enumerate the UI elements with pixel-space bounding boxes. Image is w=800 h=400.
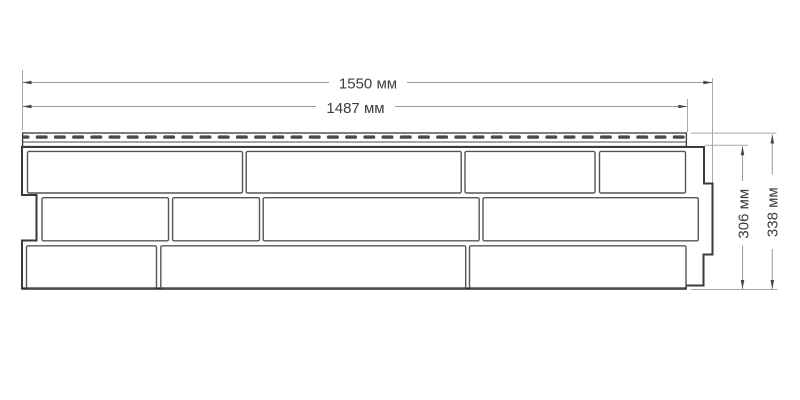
svg-text:1550 мм: 1550 мм bbox=[339, 76, 397, 93]
svg-text:1487 мм: 1487 мм bbox=[326, 100, 384, 117]
svg-text:306 мм: 306 мм bbox=[735, 189, 752, 239]
svg-text:338 мм: 338 мм bbox=[764, 187, 781, 237]
